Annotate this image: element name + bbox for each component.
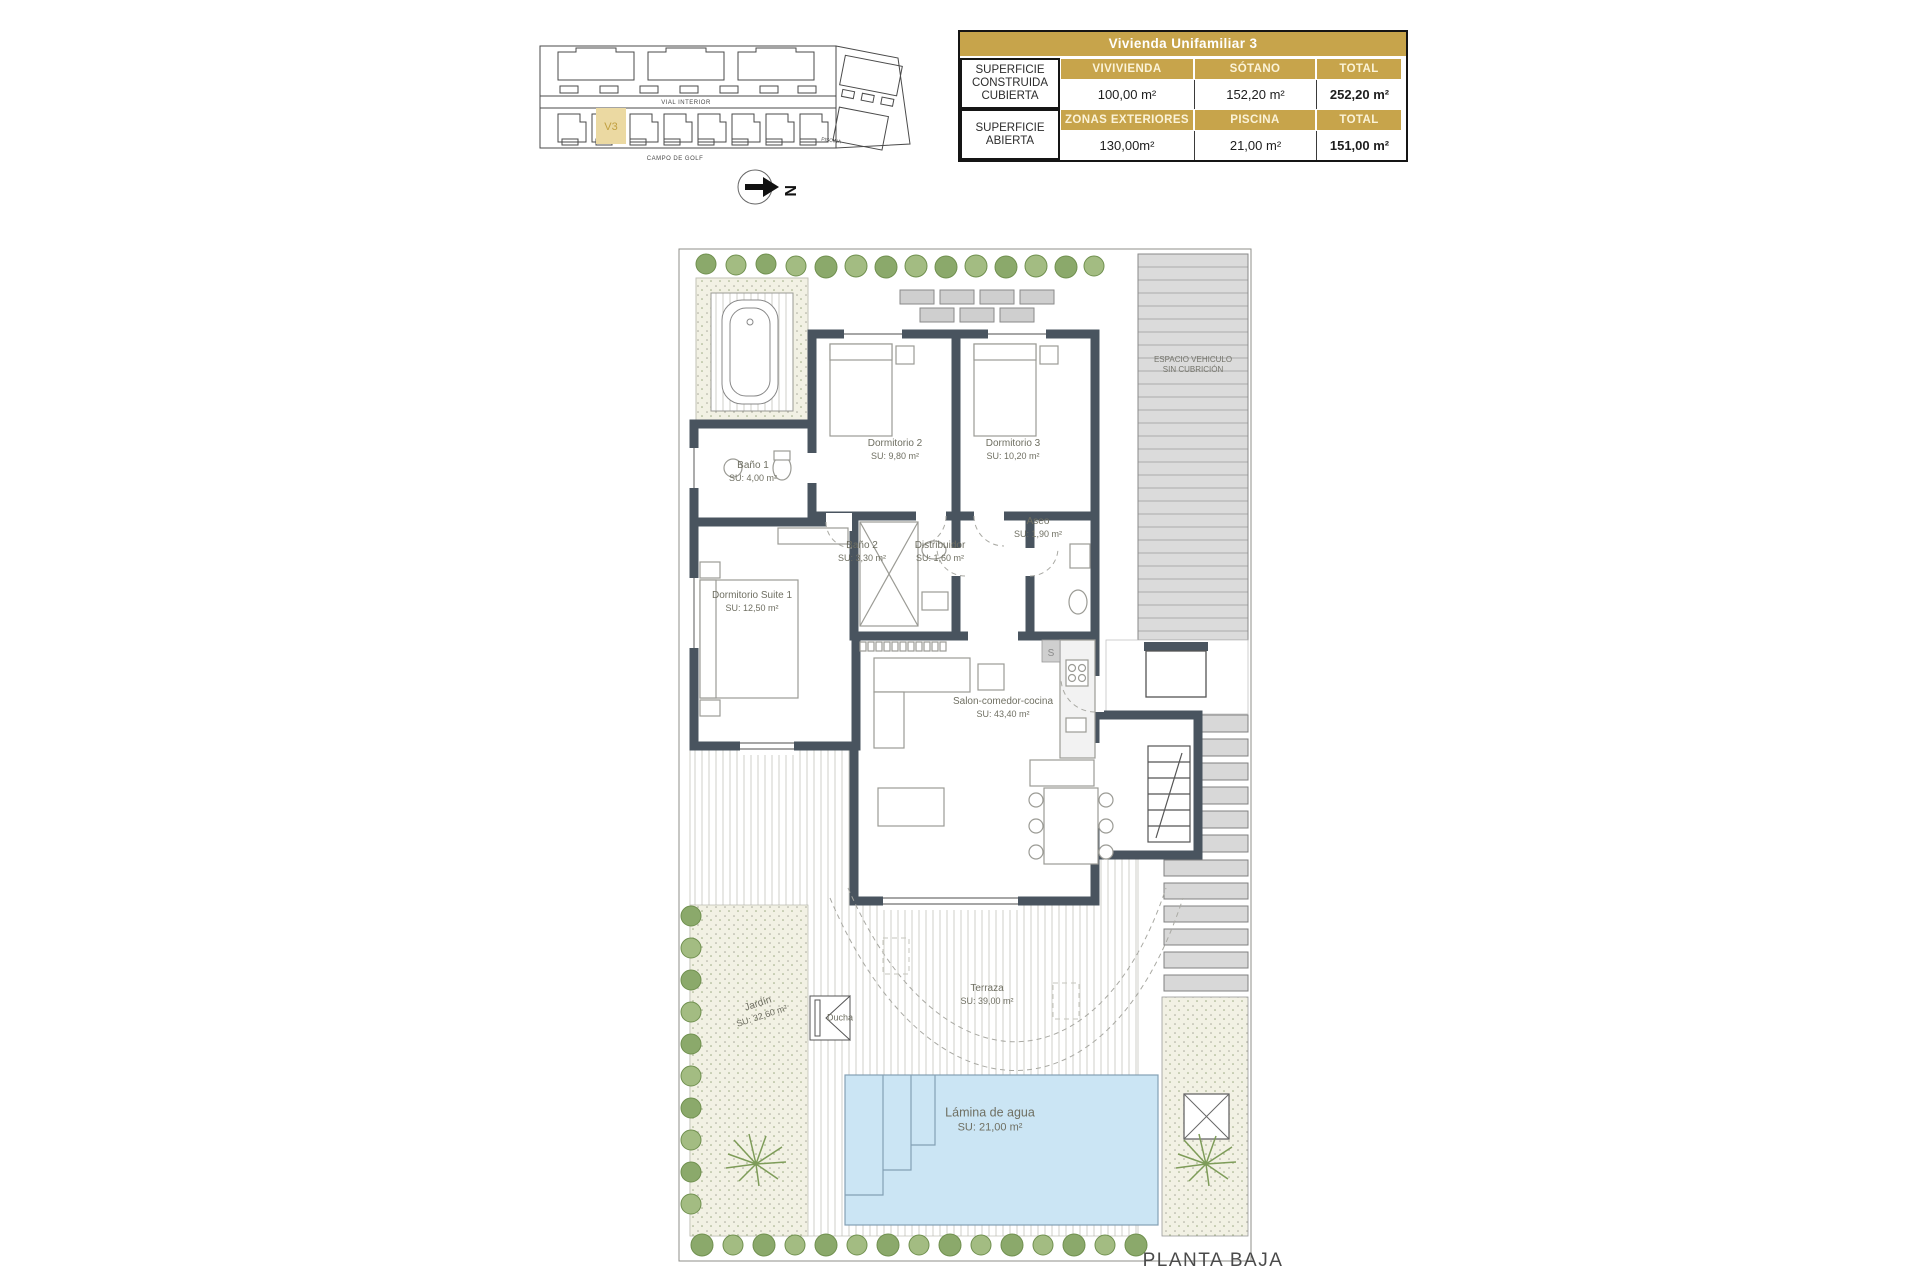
col-header-zonas-exteriores: ZONAS EXTERIORES (1060, 109, 1194, 131)
outdoor-bath-patio (696, 278, 808, 426)
value-total-abierta: 151,00 m² (1316, 131, 1402, 160)
label-lamina-de-agua: Lámina de agua SU: 21,00 m² (945, 1105, 1035, 1134)
label-dormitorio-3: Dormitorio 3 SU: 10,20 m² (986, 438, 1040, 462)
table-title: Vivienda Unifamiliar 3 (960, 32, 1406, 58)
gravel-corner (1162, 997, 1248, 1236)
salon-name: Salon-comedor-cocina (953, 696, 1053, 709)
north-letter: N (781, 185, 798, 197)
distribuidor-su: SU: 1,60 m² (915, 553, 966, 564)
ducha-name: Ducha (827, 1012, 853, 1023)
label-espacio-vehiculo: ESPACIO VEHICULO SIN CUBRICIÓN (1154, 355, 1232, 375)
value-sotano: 152,20 m² (1194, 80, 1316, 109)
driveway (1106, 254, 1248, 714)
label-ducha: Ducha (827, 1012, 853, 1023)
stepping-pavers (900, 290, 1054, 322)
dorm2-name: Dormitorio 2 (868, 438, 922, 451)
vehiculo-line1: ESPACIO VEHICULO (1154, 355, 1232, 365)
garden-area (690, 905, 808, 1236)
bano2-su: SU: 3,30 m² (838, 553, 886, 564)
lamina-name: Lámina de agua (945, 1105, 1035, 1121)
dorm2-su: SU: 9,80 m² (868, 451, 922, 462)
surface-summary-table: Vivienda Unifamiliar 3 SUPERFICIE CONSTR… (958, 30, 1408, 162)
bano2-name: Baño 2 (838, 540, 886, 553)
label-salon: Salon-comedor-cocina SU: 43,40 m² (953, 696, 1053, 720)
distribuidor-name: Distribuidor (915, 540, 966, 553)
value-piscina: 21,00 m² (1194, 131, 1316, 160)
bano1-su: SU: 4,00 m² (729, 473, 777, 484)
site-unit-v3-label: V3 (604, 121, 617, 133)
value-zonas-exteriores: 130,00m² (1060, 131, 1194, 160)
aseo-name: Aseo (1014, 516, 1062, 529)
label-bano-1: Baño 1 SU: 4,00 m² (729, 460, 777, 484)
lamina-su: SU: 21,00 m² (945, 1121, 1035, 1135)
value-vivivienda: 100,00 m² (1060, 80, 1194, 109)
site-band (540, 46, 836, 148)
terraza-su: SU: 39,00 m² (960, 996, 1013, 1007)
bano1-name: Baño 1 (729, 460, 777, 473)
site-plan: V3 VIAL INTERIOR CAMPO DE GOLF PISCINA (536, 36, 916, 171)
label-aseo: Aseo SU: 1,90 m² (1014, 516, 1062, 540)
aseo-su: SU: 1,90 m² (1014, 529, 1062, 540)
dorm3-su: SU: 10,20 m² (986, 451, 1040, 462)
floorplan-sheet: V3 VIAL INTERIOR CAMPO DE GOLF PISCINA N… (0, 0, 1920, 1280)
col-header-total-1: TOTAL (1316, 58, 1402, 80)
north-arrow-icon: N (733, 163, 813, 213)
label-terraza: Terraza SU: 39,00 m² (960, 983, 1013, 1007)
col-header-vivivienda: VIVIVIENDA (1060, 58, 1194, 80)
terraza-name: Terraza (960, 983, 1013, 996)
col-header-piscina: PISCINA (1194, 109, 1316, 131)
site-campo-de-golf-label: CAMPO DE GOLF (647, 156, 704, 162)
label-dormitorio-2: Dormitorio 2 SU: 9,80 m² (868, 438, 922, 462)
sheet-caption: PLANTA BAJA (1128, 1250, 1298, 1272)
vehiculo-line2: SIN CUBRICIÓN (1154, 365, 1232, 375)
col-header-sotano: SÓTANO (1194, 58, 1316, 80)
row-label-superficie-construida: SUPERFICIE CONSTRUIDA CUBIERTA (960, 58, 1060, 109)
site-vial-interior-label: VIAL INTERIOR (661, 100, 711, 106)
col-header-total-2: TOTAL (1316, 109, 1402, 131)
swimming-pool (845, 1075, 1158, 1225)
label-distribuidor: Distribuidor SU: 1,60 m² (915, 540, 966, 564)
dorm3-name: Dormitorio 3 (986, 438, 1040, 451)
value-total-construida: 252,20 m² (1316, 80, 1402, 109)
salon-su: SU: 43,40 m² (953, 709, 1053, 720)
kitchen-s-mark: S (1048, 648, 1055, 659)
label-suite-1: Dormitorio Suite 1 SU: 12,50 m² (712, 590, 792, 614)
row-label-superficie-abierta: SUPERFICIE ABIERTA (960, 109, 1060, 160)
suite-su: SU: 12,50 m² (712, 603, 792, 614)
label-bano-2: Baño 2 SU: 3,30 m² (838, 540, 886, 564)
suite-name: Dormitorio Suite 1 (712, 590, 792, 603)
site-piscina-label: PISCINA (821, 137, 842, 146)
